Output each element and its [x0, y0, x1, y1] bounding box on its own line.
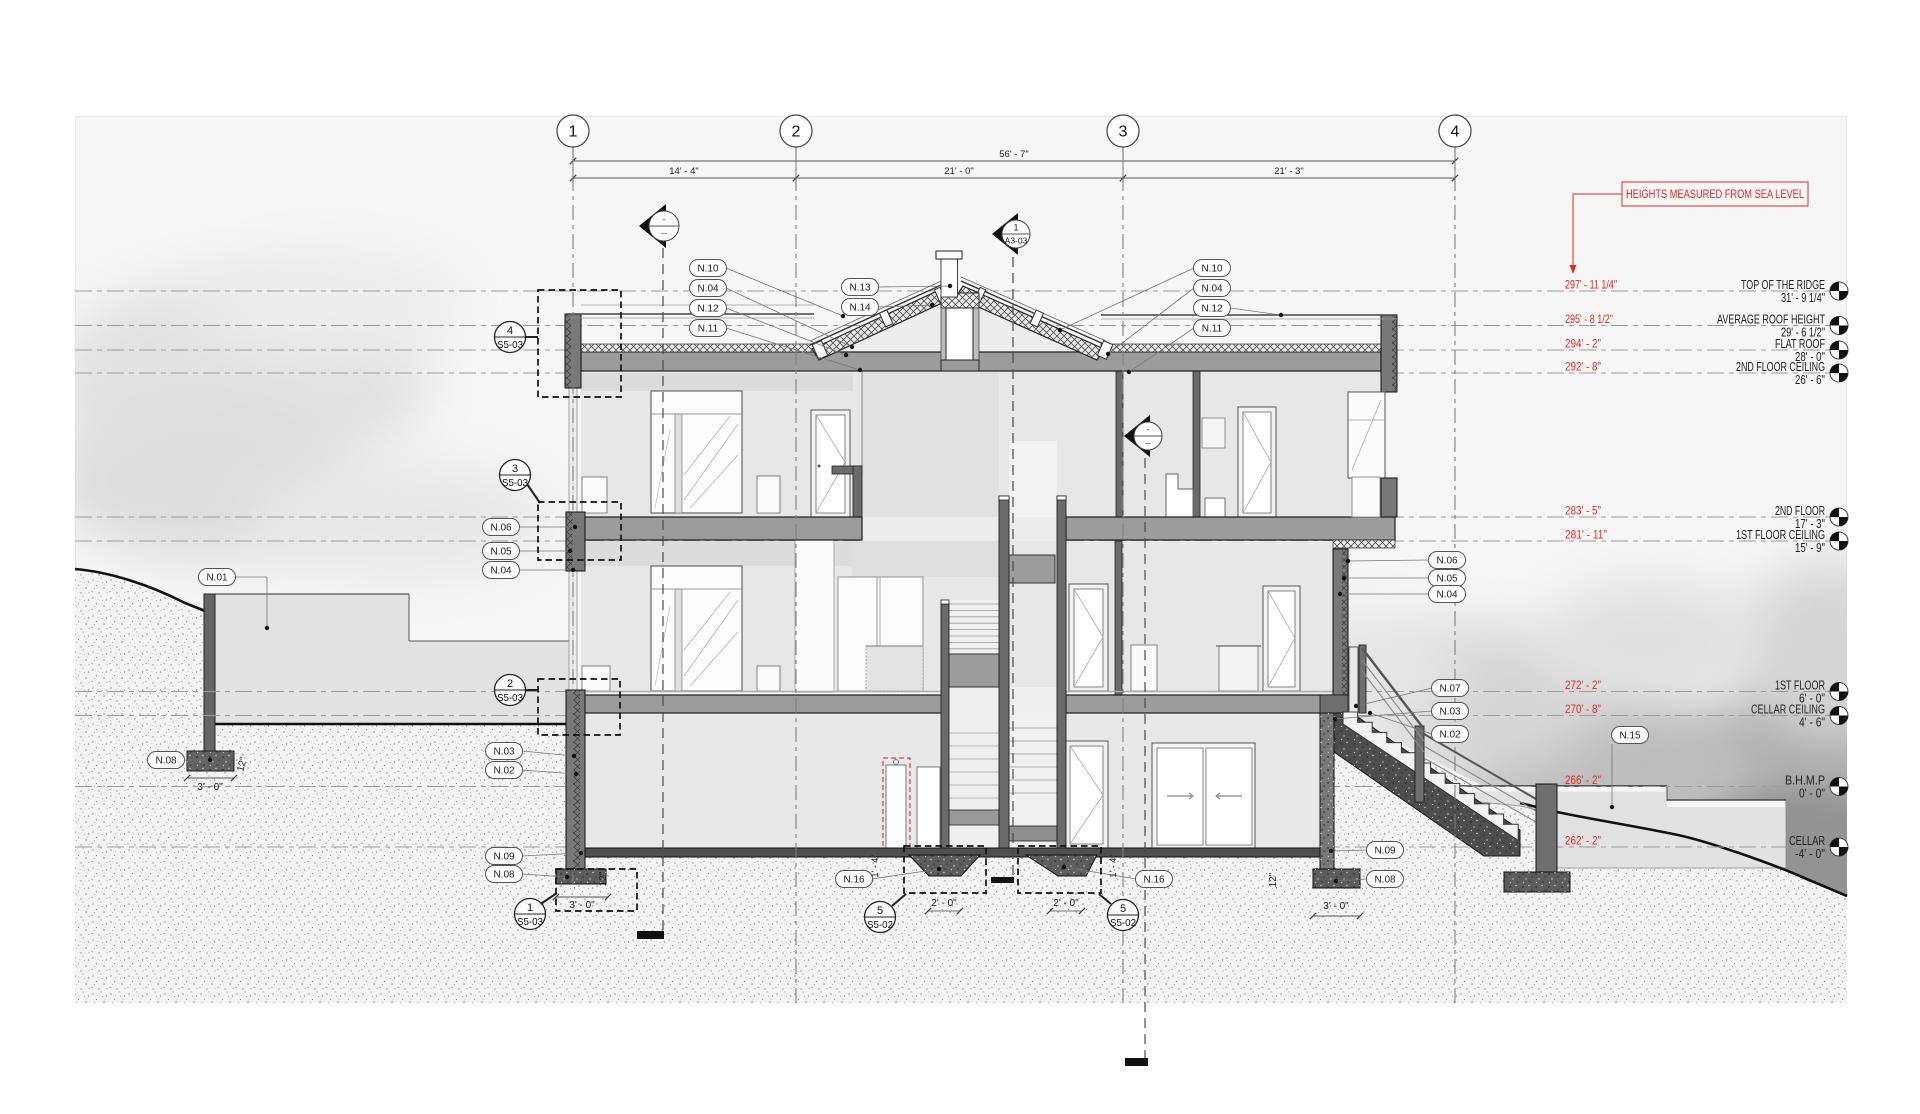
svg-text:1ST FLOOR CEILING: 1ST FLOOR CEILING [1736, 527, 1825, 542]
svg-text:5: 5 [1120, 903, 1126, 915]
svg-text:3: 3 [1119, 124, 1128, 141]
svg-text:297' - 11 1/4": 297' - 11 1/4" [1565, 278, 1617, 292]
svg-text:B.H.M.P: B.H.M.P [1785, 773, 1825, 788]
svg-text:31' - 9 1/4": 31' - 9 1/4" [1781, 291, 1825, 305]
svg-text:3' - 0": 3' - 0" [569, 900, 595, 911]
svg-text:2: 2 [507, 678, 513, 690]
svg-text:N.12: N.12 [1201, 304, 1223, 315]
svg-text:FLAT ROOF: FLAT ROOF [1775, 336, 1825, 351]
svg-text:0' - 0": 0' - 0" [1799, 787, 1825, 801]
svg-text:S5-03: S5-03 [502, 477, 528, 489]
svg-text:14' - 4": 14' - 4" [669, 166, 698, 177]
svg-text:N.05: N.05 [1436, 574, 1458, 585]
svg-text:-: - [663, 215, 666, 225]
svg-text:283' - 5": 283' - 5" [1565, 504, 1601, 518]
svg-text:N.04: N.04 [1201, 284, 1223, 295]
svg-text:12": 12" [598, 871, 609, 886]
svg-text:272' - 2": 272' - 2" [1565, 678, 1601, 692]
svg-text:N.05: N.05 [490, 547, 512, 558]
svg-text:N.01: N.01 [206, 573, 228, 584]
svg-text:3' - 0": 3' - 0" [1323, 901, 1349, 912]
svg-text:2' - 0": 2' - 0" [931, 898, 957, 909]
svg-text:N.04: N.04 [697, 284, 719, 295]
svg-text:21' - 3": 21' - 3" [1274, 166, 1303, 177]
svg-text:N.13: N.13 [849, 283, 871, 294]
svg-text:N.09: N.09 [493, 852, 515, 863]
svg-text:A3-03: A3-03 [1005, 236, 1028, 246]
svg-text:1ST FLOOR: 1ST FLOOR [1775, 678, 1825, 693]
svg-text:2: 2 [792, 124, 801, 141]
svg-text:N.11: N.11 [698, 324, 719, 335]
svg-text:1: 1 [527, 902, 533, 914]
svg-text:AVERAGE ROOF HEIGHT: AVERAGE ROOF HEIGHT [1717, 312, 1825, 327]
svg-text:N.02: N.02 [493, 766, 515, 777]
svg-text:262' - 2": 262' - 2" [1565, 834, 1601, 848]
svg-text:-4' - 0": -4' - 0" [1795, 847, 1825, 861]
svg-text:N.08: N.08 [1374, 875, 1396, 886]
svg-text:1' - 4": 1' - 4" [1108, 855, 1118, 878]
svg-text:2' - 0": 2' - 0" [1053, 898, 1079, 909]
svg-text:-: - [1147, 425, 1150, 435]
svg-text:N.12: N.12 [697, 304, 719, 315]
svg-text:HEIGHTS MEASURED FROM SEA LEVE: HEIGHTS MEASURED FROM SEA LEVEL [1626, 187, 1804, 201]
svg-text:N.03: N.03 [1439, 707, 1461, 718]
svg-text:292' - 8": 292' - 8" [1565, 360, 1601, 374]
svg-text:N.06: N.06 [490, 523, 512, 534]
svg-text:S5-02: S5-02 [1110, 917, 1136, 929]
svg-text:N.03: N.03 [493, 747, 515, 758]
svg-text:S5-03: S5-03 [497, 692, 523, 704]
svg-text:N.04: N.04 [490, 566, 512, 577]
svg-text:N.08: N.08 [493, 870, 515, 881]
svg-text:295' - 8 1/2": 295' - 8 1/2" [1565, 312, 1613, 326]
svg-text:TOP OF THE RIDGE: TOP OF THE RIDGE [1741, 277, 1825, 292]
svg-text:N.08: N.08 [155, 756, 177, 767]
svg-text:270' - 8": 270' - 8" [1565, 702, 1601, 716]
svg-text:4: 4 [507, 325, 513, 337]
svg-text:N.11: N.11 [1202, 324, 1223, 335]
svg-text:N.10: N.10 [697, 264, 719, 275]
svg-text:N.04: N.04 [1436, 590, 1458, 601]
svg-text:56' - 7": 56' - 7" [999, 149, 1028, 160]
svg-text:1: 1 [1013, 223, 1018, 233]
svg-text:2ND FLOOR: 2ND FLOOR [1775, 503, 1825, 518]
svg-text:12": 12" [1268, 872, 1279, 887]
svg-text:3: 3 [512, 463, 518, 475]
svg-text:--: -- [1145, 438, 1151, 448]
svg-text:266' - 2": 266' - 2" [1565, 773, 1601, 787]
svg-text:CELLAR: CELLAR [1789, 833, 1825, 848]
svg-text:26' - 6": 26' - 6" [1795, 373, 1825, 387]
svg-text:4: 4 [1451, 124, 1460, 141]
svg-text:N.02: N.02 [1439, 730, 1461, 741]
svg-text:S5-02: S5-02 [867, 919, 893, 931]
svg-text:N.07: N.07 [1439, 684, 1461, 695]
svg-text:CELLAR CEILING: CELLAR CEILING [1751, 702, 1825, 717]
svg-text:N.06: N.06 [1436, 556, 1458, 567]
svg-text:21' - 0": 21' - 0" [944, 166, 973, 177]
svg-text:1: 1 [569, 124, 578, 141]
svg-text:4' - 6": 4' - 6" [1799, 716, 1825, 730]
svg-text:294' - 2": 294' - 2" [1565, 337, 1601, 351]
svg-text:5: 5 [877, 905, 883, 917]
svg-text:N.10: N.10 [1201, 264, 1223, 275]
svg-text:3' - 0": 3' - 0" [197, 782, 223, 793]
svg-text:N.14: N.14 [849, 303, 871, 314]
svg-text:1' - 4": 1' - 4" [870, 855, 880, 878]
svg-text:281' - 11": 281' - 11" [1565, 528, 1607, 542]
svg-text:2ND FLOOR CEILING: 2ND FLOOR CEILING [1736, 359, 1825, 374]
svg-text:N.16: N.16 [1143, 875, 1165, 886]
svg-text:S5-03: S5-03 [517, 916, 543, 928]
svg-text:--: -- [661, 228, 667, 238]
svg-text:S5-03: S5-03 [497, 339, 523, 351]
svg-text:15' - 9": 15' - 9" [1795, 541, 1825, 555]
svg-text:N.15: N.15 [1619, 731, 1641, 742]
svg-text:N.09: N.09 [1374, 846, 1396, 857]
svg-text:N.16: N.16 [843, 875, 865, 886]
